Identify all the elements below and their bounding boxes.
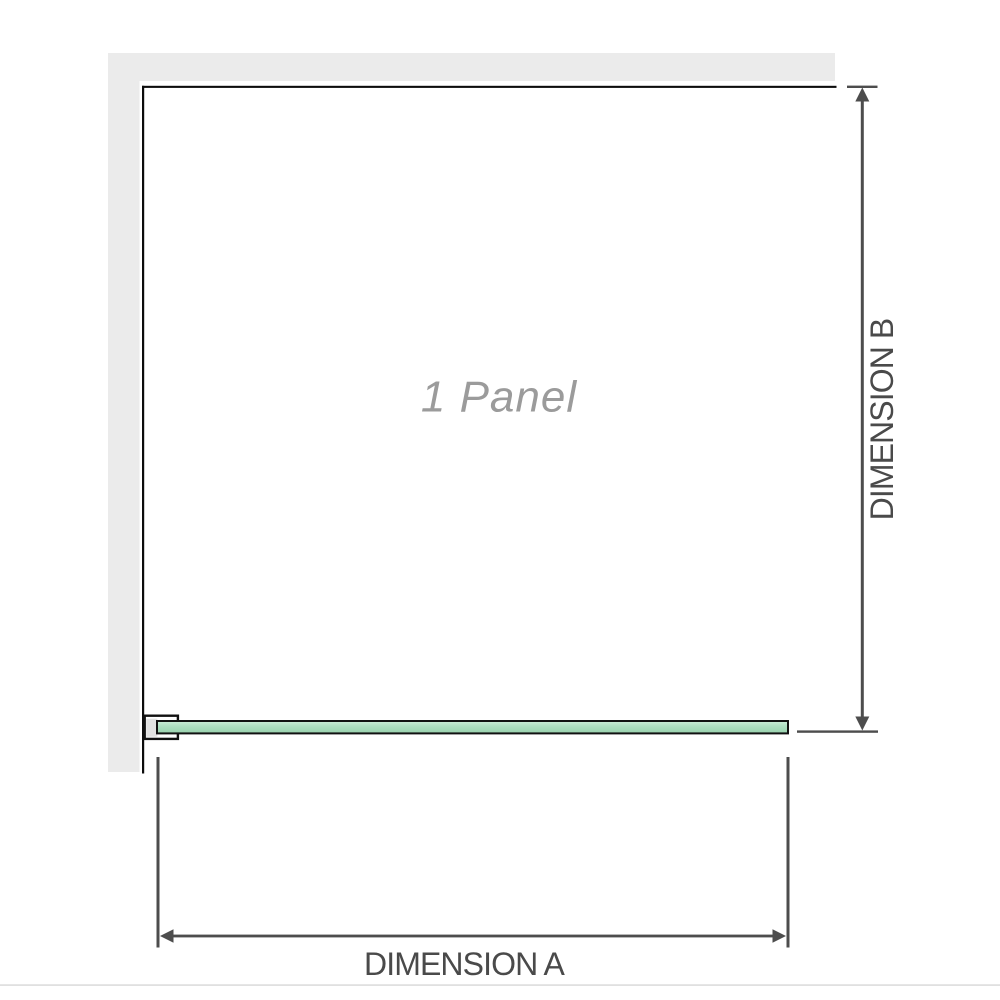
svg-text:1 Panel: 1 Panel [421,373,577,422]
svg-text:DIMENSION B: DIMENSION B [864,319,900,521]
svg-text:DIMENSION A: DIMENSION A [364,946,565,982]
